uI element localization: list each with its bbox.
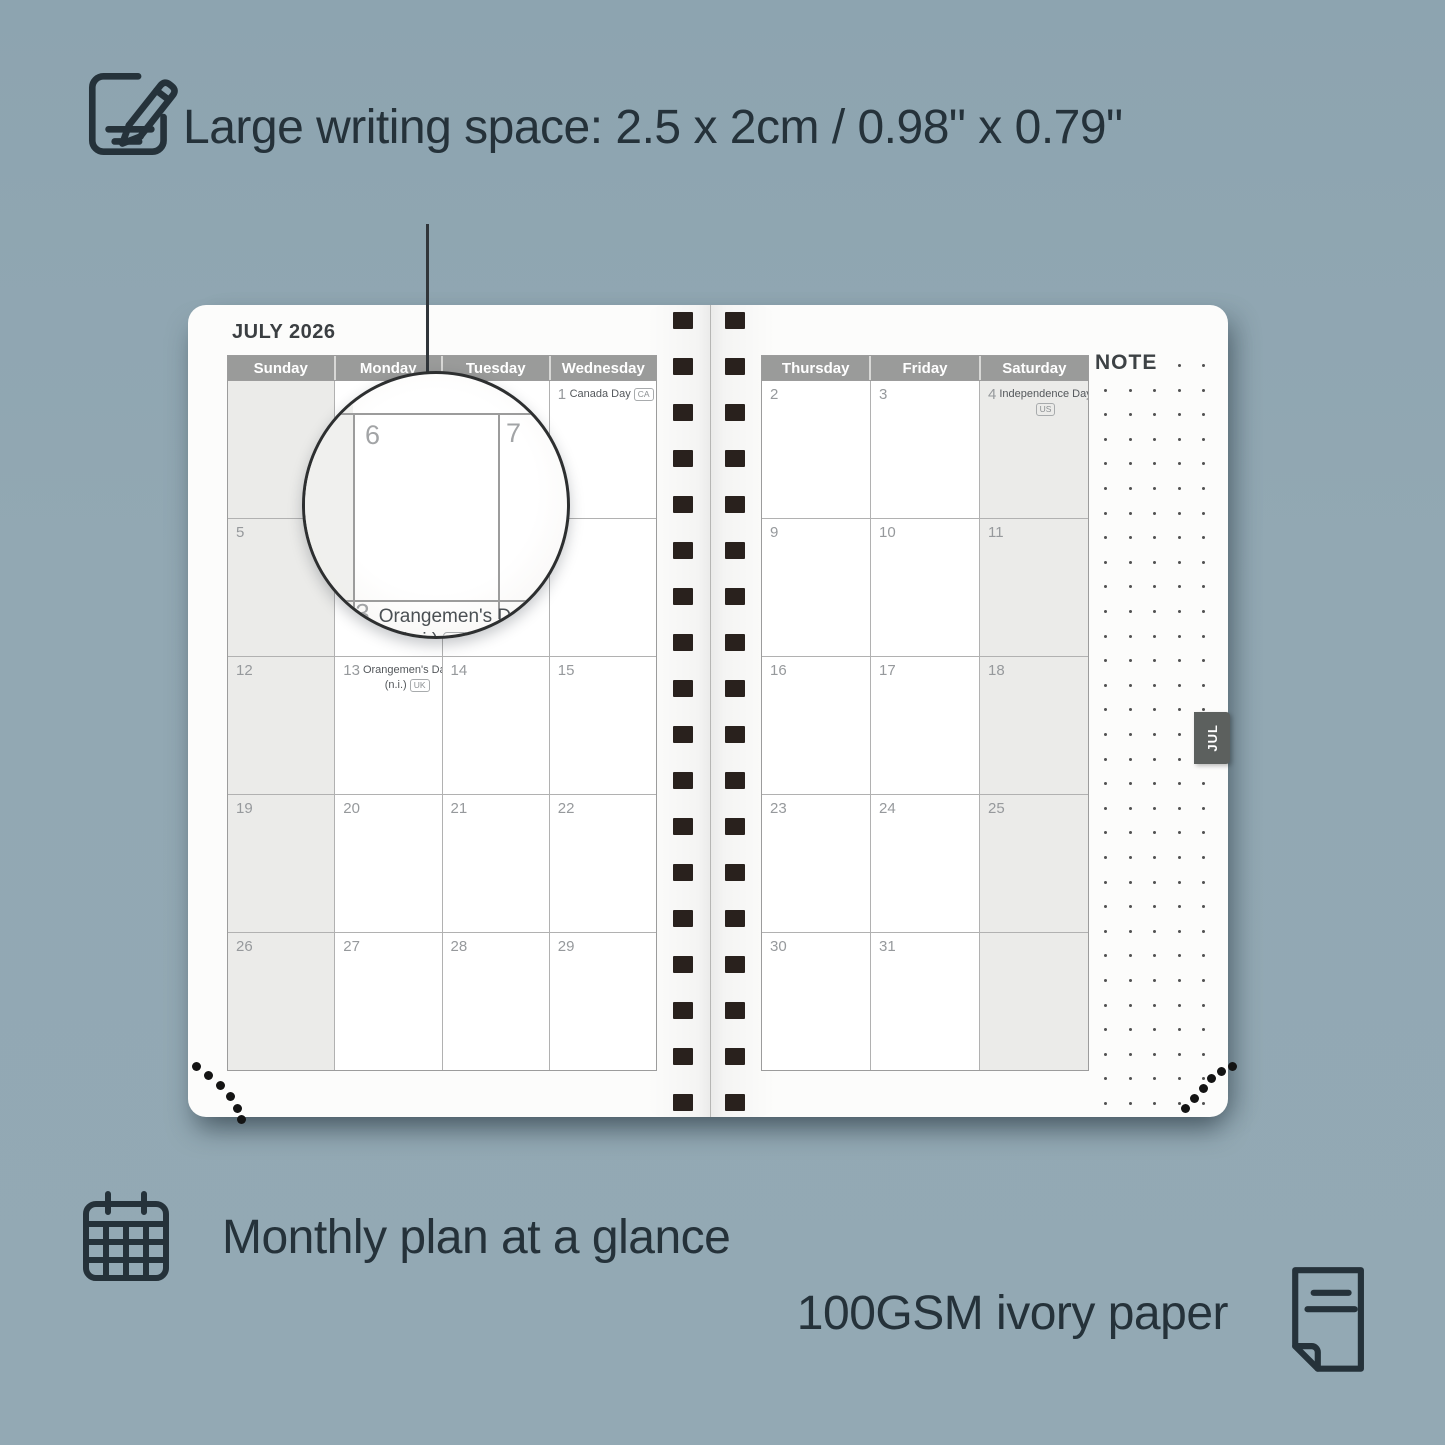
page-gutter bbox=[646, 305, 776, 1117]
note-dot bbox=[1104, 413, 1107, 416]
binding-hole bbox=[725, 542, 745, 559]
note-dot bbox=[1153, 561, 1156, 564]
date-number: 22 bbox=[558, 801, 575, 818]
note-dot bbox=[1178, 462, 1181, 465]
date-number: 23 bbox=[770, 801, 787, 818]
note-dot bbox=[1178, 512, 1181, 515]
day-header: Thursday bbox=[762, 356, 869, 380]
binding-hole bbox=[725, 1002, 745, 1019]
date-number: 24 bbox=[879, 801, 896, 818]
date-number: 20 bbox=[343, 801, 360, 818]
note-dot bbox=[1129, 684, 1132, 687]
calendar-cell: 11 bbox=[980, 519, 1088, 656]
corner-dot bbox=[216, 1081, 225, 1090]
note-dot bbox=[1178, 487, 1181, 490]
note-dot bbox=[1153, 733, 1156, 736]
note-dot bbox=[1178, 979, 1181, 982]
calendar-cell: 15 bbox=[550, 657, 656, 794]
calendar-week-row: 232425 bbox=[762, 795, 1088, 933]
holiday-entry: Canada DayCA bbox=[569, 387, 654, 401]
note-dot bbox=[1202, 684, 1205, 687]
note-dot bbox=[1153, 881, 1156, 884]
note-dot bbox=[1153, 512, 1156, 515]
note-dot bbox=[1129, 831, 1132, 834]
holiday-name: Canada Day bbox=[570, 388, 631, 401]
note-dot bbox=[1129, 659, 1132, 662]
feature-writing-space-label: Large writing space: 2.5 x 2cm / 0.98" x… bbox=[183, 100, 1123, 155]
note-dot bbox=[1129, 1077, 1132, 1080]
calendar-cell: 29 bbox=[550, 933, 656, 1070]
note-dot bbox=[1178, 659, 1181, 662]
calendar-cell: 13Orangemen's Day(n.i.)UK bbox=[335, 657, 442, 794]
note-dot bbox=[1153, 438, 1156, 441]
date-number: 29 bbox=[558, 939, 575, 956]
note-dot bbox=[1153, 758, 1156, 761]
note-dot bbox=[1104, 1077, 1107, 1080]
magnified-gridline bbox=[353, 413, 355, 619]
note-dot bbox=[1129, 881, 1132, 884]
date-number: 11 bbox=[988, 525, 1004, 542]
binding-hole bbox=[725, 772, 745, 789]
note-dot bbox=[1129, 954, 1132, 957]
note-dot bbox=[1104, 979, 1107, 982]
calendar-cell: 3 bbox=[871, 381, 980, 518]
note-dot bbox=[1178, 831, 1181, 834]
magnified-holiday-row: 13 Orangemen's Day bbox=[305, 598, 567, 629]
country-badge: UK bbox=[410, 679, 430, 692]
note-dot bbox=[1104, 831, 1107, 834]
note-dot bbox=[1153, 684, 1156, 687]
magnified-date-6: 6 bbox=[365, 420, 380, 451]
note-dot bbox=[1153, 462, 1156, 465]
note-dot bbox=[1129, 438, 1132, 441]
calendar-week-row: 26272829 bbox=[228, 933, 656, 1070]
note-dot bbox=[1129, 733, 1132, 736]
date-number: 31 bbox=[879, 939, 896, 956]
date-number: 18 bbox=[988, 663, 1005, 680]
month-tab: JUL bbox=[1194, 712, 1230, 764]
date-number: 25 bbox=[988, 801, 1005, 818]
note-dot bbox=[1104, 635, 1107, 638]
note-dot bbox=[1153, 610, 1156, 613]
note-dot bbox=[1202, 364, 1205, 367]
feature-monthly-plan-label: Monthly plan at a glance bbox=[222, 1210, 730, 1265]
note-dot bbox=[1153, 1102, 1156, 1105]
note-dot bbox=[1178, 1102, 1181, 1105]
note-dot bbox=[1129, 856, 1132, 859]
note-dot bbox=[1202, 1004, 1205, 1007]
holiday-name: Independence Day bbox=[999, 388, 1088, 401]
note-dot bbox=[1202, 487, 1205, 490]
calendar-icon bbox=[78, 1188, 174, 1284]
date-number: 13 bbox=[343, 663, 360, 680]
note-dot bbox=[1202, 807, 1205, 810]
calendar-week-row: 1213Orangemen's Day(n.i.)UK1415 bbox=[228, 657, 656, 795]
note-dot bbox=[1202, 831, 1205, 834]
note-dot bbox=[1153, 856, 1156, 859]
note-dot bbox=[1104, 954, 1107, 957]
note-dot bbox=[1178, 856, 1181, 859]
binding-hole bbox=[673, 910, 693, 927]
note-dot bbox=[1129, 462, 1132, 465]
note-dot bbox=[1153, 1028, 1156, 1031]
note-dot bbox=[1104, 1028, 1107, 1031]
note-dot bbox=[1178, 930, 1181, 933]
date-number: 19 bbox=[236, 801, 253, 818]
note-dot bbox=[1202, 1102, 1205, 1105]
corner-dot bbox=[192, 1062, 201, 1071]
binding-hole bbox=[725, 680, 745, 697]
date-number: 4 bbox=[988, 387, 996, 404]
binding-hole bbox=[673, 1002, 693, 1019]
note-dot bbox=[1129, 536, 1132, 539]
note-dot bbox=[1104, 1053, 1107, 1056]
binding-hole bbox=[673, 634, 693, 651]
note-dot bbox=[1178, 1077, 1181, 1080]
binding-hole bbox=[673, 358, 693, 375]
note-dot bbox=[1104, 782, 1107, 785]
note-dot bbox=[1202, 1028, 1205, 1031]
date-number: 15 bbox=[558, 663, 575, 680]
date-number: 5 bbox=[236, 525, 244, 542]
note-dot bbox=[1129, 1004, 1132, 1007]
note-dot bbox=[1153, 1004, 1156, 1007]
binding-hole bbox=[673, 1094, 693, 1111]
note-dot bbox=[1178, 1028, 1181, 1031]
magnifier-circle: 6 7 13 Orangemen's Day (n.i.) UK bbox=[302, 371, 570, 639]
date-number: 30 bbox=[770, 939, 787, 956]
calendar-cell: 28 bbox=[443, 933, 550, 1070]
note-dot bbox=[1129, 1053, 1132, 1056]
binding-hole bbox=[725, 358, 745, 375]
note-dot bbox=[1104, 930, 1107, 933]
note-dot bbox=[1104, 659, 1107, 662]
note-dot bbox=[1153, 930, 1156, 933]
date-number: 1 bbox=[558, 387, 566, 404]
calendar-cell: 21 bbox=[443, 795, 550, 932]
note-dot bbox=[1104, 733, 1107, 736]
note-dot bbox=[1178, 1004, 1181, 1007]
corner-dot bbox=[233, 1104, 242, 1113]
note-dot bbox=[1178, 364, 1181, 367]
note-dot bbox=[1178, 413, 1181, 416]
country-badge: US bbox=[1036, 403, 1056, 416]
note-dot bbox=[1153, 635, 1156, 638]
note-dot bbox=[1178, 585, 1181, 588]
note-dot bbox=[1178, 536, 1181, 539]
corner-dot bbox=[204, 1071, 213, 1080]
note-dot bbox=[1129, 979, 1132, 982]
note-dot bbox=[1202, 561, 1205, 564]
note-dot bbox=[1129, 1028, 1132, 1031]
note-dot bbox=[1129, 389, 1132, 392]
corner-dot bbox=[1190, 1094, 1199, 1103]
country-badge: CA bbox=[634, 388, 654, 401]
note-dot bbox=[1129, 782, 1132, 785]
note-dot bbox=[1202, 1053, 1205, 1056]
holiday-entry: Independence DayUS bbox=[999, 387, 1088, 416]
calendar-cell: 23 bbox=[762, 795, 871, 932]
note-dot bbox=[1104, 684, 1107, 687]
month-title: JULY 2026 bbox=[232, 321, 335, 344]
binding-hole bbox=[725, 818, 745, 835]
note-dot bbox=[1104, 536, 1107, 539]
calendar-cell: 22 bbox=[550, 795, 656, 932]
calendar-cell: 4Independence DayUS bbox=[980, 381, 1088, 518]
binding-hole bbox=[725, 588, 745, 605]
calendar-cell: 30 bbox=[762, 933, 871, 1070]
binding-hole bbox=[673, 588, 693, 605]
day-header: Wednesday bbox=[549, 356, 657, 380]
calendar-cell: 20 bbox=[335, 795, 442, 932]
note-dot bbox=[1202, 659, 1205, 662]
date-number: 10 bbox=[879, 525, 896, 542]
note-dot bbox=[1178, 610, 1181, 613]
date-number: 17 bbox=[879, 663, 896, 680]
pencil-note-icon bbox=[76, 58, 188, 170]
corner-dot bbox=[1199, 1084, 1208, 1093]
binding-hole bbox=[725, 726, 745, 743]
note-dot bbox=[1153, 807, 1156, 810]
note-dot bbox=[1202, 979, 1205, 982]
magnified-date-7: 7 bbox=[506, 418, 521, 449]
paper-icon bbox=[1274, 1262, 1378, 1380]
note-dot bbox=[1104, 487, 1107, 490]
note-dot bbox=[1202, 930, 1205, 933]
note-dot bbox=[1153, 413, 1156, 416]
binding-hole bbox=[673, 542, 693, 559]
calendar-cell: 27 bbox=[335, 933, 442, 1070]
calendar-cell: 26 bbox=[228, 933, 335, 1070]
note-dot bbox=[1129, 758, 1132, 761]
binding-hole bbox=[673, 864, 693, 881]
note-dot bbox=[1202, 512, 1205, 515]
calendar-cell: 25 bbox=[980, 795, 1088, 932]
note-dot bbox=[1178, 389, 1181, 392]
note-label: NOTE bbox=[1095, 351, 1157, 375]
note-dot bbox=[1104, 389, 1107, 392]
date-number: 21 bbox=[451, 801, 468, 818]
magnified-gridline bbox=[317, 413, 555, 415]
note-dot bbox=[1104, 1004, 1107, 1007]
calendar-week-row: 19202122 bbox=[228, 795, 656, 933]
date-number: 27 bbox=[343, 939, 360, 956]
right-day-header-row: ThursdayFridaySaturday bbox=[762, 356, 1088, 381]
note-dot bbox=[1153, 536, 1156, 539]
binding-hole bbox=[673, 772, 693, 789]
binding-hole bbox=[673, 450, 693, 467]
note-dot bbox=[1129, 1102, 1132, 1105]
note-dot bbox=[1178, 905, 1181, 908]
note-dot bbox=[1178, 438, 1181, 441]
feature-paper-label: 100GSM ivory paper bbox=[797, 1286, 1228, 1341]
day-header: Friday bbox=[869, 356, 978, 380]
note-dot bbox=[1178, 782, 1181, 785]
calendar-cell bbox=[980, 933, 1088, 1070]
date-number: 14 bbox=[451, 663, 468, 680]
day-header: Saturday bbox=[979, 356, 1088, 380]
binding-hole bbox=[725, 404, 745, 421]
corner-dot bbox=[1228, 1062, 1237, 1071]
note-dot bbox=[1153, 831, 1156, 834]
binding-hole bbox=[673, 1048, 693, 1065]
corner-dot bbox=[1181, 1104, 1190, 1113]
note-dot bbox=[1178, 954, 1181, 957]
note-dot bbox=[1178, 1053, 1181, 1056]
page-seam bbox=[710, 305, 711, 1117]
note-dot bbox=[1178, 635, 1181, 638]
calendar-cell: 18 bbox=[980, 657, 1088, 794]
note-dot bbox=[1202, 782, 1205, 785]
binding-hole bbox=[725, 956, 745, 973]
binding-hole bbox=[673, 404, 693, 421]
note-dot bbox=[1129, 610, 1132, 613]
note-dot bbox=[1104, 610, 1107, 613]
magnified-gridline bbox=[498, 413, 500, 619]
note-dot bbox=[1202, 536, 1205, 539]
note-dot bbox=[1202, 881, 1205, 884]
binding-hole bbox=[725, 1048, 745, 1065]
binding-hole bbox=[673, 680, 693, 697]
date-number: 26 bbox=[236, 939, 253, 956]
note-dot bbox=[1104, 881, 1107, 884]
note-dot bbox=[1104, 856, 1107, 859]
binding-hole bbox=[673, 956, 693, 973]
note-dot bbox=[1129, 487, 1132, 490]
note-dot bbox=[1202, 954, 1205, 957]
note-dot bbox=[1202, 856, 1205, 859]
note-dot bbox=[1129, 905, 1132, 908]
note-dot bbox=[1178, 708, 1181, 711]
note-dot bbox=[1104, 708, 1107, 711]
note-dot bbox=[1202, 462, 1205, 465]
note-dot bbox=[1153, 1077, 1156, 1080]
calendar-cell: 9 bbox=[762, 519, 871, 656]
calendar-week-row: 234Independence DayUS bbox=[762, 381, 1088, 519]
note-dot bbox=[1153, 979, 1156, 982]
note-dot bbox=[1153, 585, 1156, 588]
date-number: 3 bbox=[879, 387, 887, 404]
note-dot bbox=[1129, 807, 1132, 810]
calendar-week-row: 3031 bbox=[762, 933, 1088, 1070]
calendar-cell: 2 bbox=[762, 381, 871, 518]
calendar-cell: 17 bbox=[871, 657, 980, 794]
calendar-cell: 16 bbox=[762, 657, 871, 794]
calendar-cell: 19 bbox=[228, 795, 335, 932]
note-dot bbox=[1202, 610, 1205, 613]
note-dot bbox=[1153, 708, 1156, 711]
magnified-date-13: 13 bbox=[341, 598, 370, 629]
date-number: 2 bbox=[770, 387, 778, 404]
note-dot bbox=[1153, 389, 1156, 392]
note-dot bbox=[1129, 561, 1132, 564]
calendar-cell: 12 bbox=[228, 657, 335, 794]
note-dot bbox=[1202, 389, 1205, 392]
note-dot bbox=[1178, 561, 1181, 564]
note-dot bbox=[1178, 881, 1181, 884]
note-dot bbox=[1129, 635, 1132, 638]
note-dot bbox=[1202, 635, 1205, 638]
note-dot bbox=[1202, 905, 1205, 908]
calendar-week-row: 161718 bbox=[762, 657, 1088, 795]
note-dot bbox=[1129, 512, 1132, 515]
note-dot bbox=[1104, 512, 1107, 515]
date-number: 16 bbox=[770, 663, 787, 680]
note-dot bbox=[1129, 413, 1132, 416]
note-dot bbox=[1178, 733, 1181, 736]
note-dot bbox=[1104, 758, 1107, 761]
corner-dot bbox=[1217, 1067, 1226, 1076]
note-dot bbox=[1104, 462, 1107, 465]
right-calendar-table: ThursdayFridaySaturday 234Independence D… bbox=[761, 355, 1089, 1071]
holiday-name: Orangemen's Day bbox=[363, 664, 443, 677]
month-tab-label: JUL bbox=[1205, 724, 1220, 752]
binding-hole bbox=[725, 864, 745, 881]
note-dot bbox=[1202, 438, 1205, 441]
note-dot bbox=[1202, 585, 1205, 588]
binding-hole bbox=[725, 634, 745, 651]
binding-hole bbox=[725, 496, 745, 513]
note-dot bbox=[1129, 708, 1132, 711]
holiday-entry: Orangemen's Day(n.i.)UK bbox=[363, 663, 443, 692]
binding-hole bbox=[673, 726, 693, 743]
note-dot bbox=[1202, 413, 1205, 416]
right-calendar-body: 234Independence DayUS9101116171823242530… bbox=[762, 381, 1088, 1070]
binding-hole bbox=[673, 818, 693, 835]
holiday-subname: (n.i.) bbox=[385, 679, 407, 692]
calendar-cell: 24 bbox=[871, 795, 980, 932]
note-dot bbox=[1178, 807, 1181, 810]
note-dot bbox=[1153, 487, 1156, 490]
note-dot bbox=[1178, 758, 1181, 761]
binding-hole bbox=[725, 312, 745, 329]
date-number: 12 bbox=[236, 663, 253, 680]
binding-hole bbox=[673, 312, 693, 329]
note-dot bbox=[1153, 954, 1156, 957]
magnified-holiday-name: Orangemen's Day bbox=[379, 606, 532, 628]
calendar-cell: 10 bbox=[871, 519, 980, 656]
calendar-cell: 31 bbox=[871, 933, 980, 1070]
note-dot bbox=[1202, 1077, 1205, 1080]
date-number: 28 bbox=[451, 939, 468, 956]
note-dot bbox=[1153, 1053, 1156, 1056]
note-dot bbox=[1178, 684, 1181, 687]
corner-dot bbox=[226, 1092, 235, 1101]
binding-hole bbox=[725, 450, 745, 467]
note-dot bbox=[1104, 561, 1107, 564]
note-dot bbox=[1202, 708, 1205, 711]
note-dot bbox=[1104, 1102, 1107, 1105]
date-number: 9 bbox=[770, 525, 778, 542]
note-dot bbox=[1104, 438, 1107, 441]
note-dot bbox=[1104, 905, 1107, 908]
corner-dot bbox=[1207, 1074, 1216, 1083]
note-dot bbox=[1104, 807, 1107, 810]
magnifier-pointer-line bbox=[426, 224, 429, 372]
binding-hole bbox=[725, 910, 745, 927]
note-dot bbox=[1153, 782, 1156, 785]
binding-hole bbox=[725, 1094, 745, 1111]
note-dot bbox=[1129, 930, 1132, 933]
note-dot bbox=[1104, 585, 1107, 588]
corner-dot bbox=[237, 1115, 246, 1124]
binding-hole bbox=[673, 496, 693, 513]
note-dot bbox=[1153, 659, 1156, 662]
calendar-cell: 14 bbox=[443, 657, 550, 794]
note-dot bbox=[1153, 905, 1156, 908]
calendar-week-row: 91011 bbox=[762, 519, 1088, 657]
note-dot bbox=[1129, 585, 1132, 588]
